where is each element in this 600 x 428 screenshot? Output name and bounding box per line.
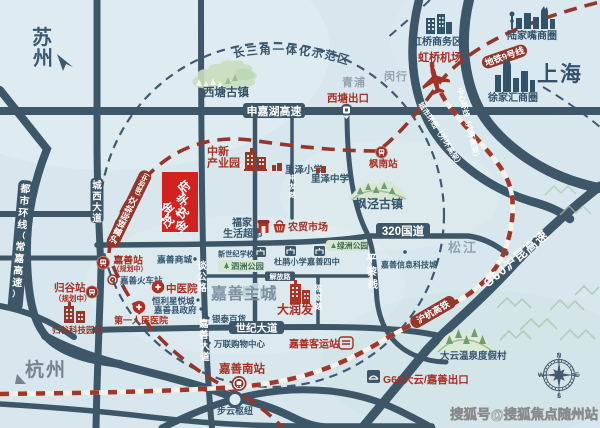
svg-text:归谷站: 归谷站: [54, 281, 86, 294]
svg-text:大润发: 大润发: [277, 302, 314, 317]
svg-text:嘉善商城: 嘉善商城: [156, 254, 192, 265]
svg-text:虹桥商务区: 虹桥商务区: [412, 35, 462, 48]
svg-text:家: 家: [315, 292, 323, 302]
svg-text:环: 环: [18, 207, 29, 220]
svg-text:嘉善县政府: 嘉善县政府: [153, 305, 197, 315]
svg-text:（规划中）: （规划中）: [54, 293, 92, 303]
svg-text:大: 大: [92, 202, 102, 214]
svg-text:友: 友: [289, 182, 296, 191]
svg-text:大云温泉度假村: 大云温泉度假村: [440, 350, 507, 362]
svg-text:生活超市: 生活超市: [223, 227, 263, 240]
svg-text:农贸市场: 农贸市场: [287, 221, 328, 234]
svg-text:善: 善: [199, 329, 209, 341]
svg-text:万联购物中心: 万联购物中心: [213, 339, 266, 349]
svg-text:徐家汇商圈: 徐家汇商圈: [487, 91, 538, 104]
svg-text:嘉善站: 嘉善站: [113, 254, 144, 267]
svg-text:上海: 上海: [537, 62, 583, 86]
svg-text:西塘出口: 西塘出口: [327, 92, 369, 105]
svg-text:W: W: [538, 372, 545, 379]
svg-text:中新: 中新: [207, 144, 229, 158]
svg-text:解放路: 解放路: [270, 272, 292, 281]
svg-text:虹桥机场: 虹桥机场: [418, 50, 462, 64]
svg-text:枫南站: 枫南站: [369, 158, 398, 170]
svg-text:中医院: 中医院: [166, 282, 198, 295]
svg-text:S: S: [557, 393, 562, 400]
svg-text:路: 路: [289, 190, 296, 199]
svg-text:松江: 松江: [448, 240, 478, 255]
svg-text:E: E: [575, 372, 580, 379]
svg-text:步云枢纽: 步云枢纽: [217, 405, 253, 416]
svg-text:）: ）: [12, 289, 21, 300]
svg-text:常: 常: [15, 240, 26, 254]
svg-text:泗洲公园: 泗洲公园: [231, 261, 264, 271]
svg-text:西塘古镇: 西塘古镇: [203, 85, 249, 99]
svg-text:市: 市: [19, 194, 30, 208]
svg-text:平: 平: [367, 253, 377, 265]
svg-text:嘉: 嘉: [198, 318, 209, 330]
svg-text:黎: 黎: [367, 265, 377, 278]
svg-text:福家: 福家: [231, 216, 253, 229]
svg-text:枫泾古镇: 枫泾古镇: [355, 196, 403, 211]
svg-text:银泰百货: 银泰百货: [211, 314, 247, 324]
svg-text:绿洲公园: 绿洲公园: [337, 241, 368, 251]
svg-text:苏: 苏: [32, 26, 52, 49]
svg-text:谈: 谈: [197, 260, 207, 272]
svg-text:G60大云/嘉善出口: G60大云/嘉善出口: [383, 373, 469, 386]
svg-text:道: 道: [200, 351, 210, 363]
svg-text:嘉善四中: 嘉善四中: [306, 257, 340, 267]
svg-text:速: 速: [12, 275, 23, 289]
svg-text:里泽中学: 里泽中学: [311, 173, 350, 185]
svg-text:（规划中）: （规划中）: [113, 264, 148, 273]
svg-text:申嘉湖高速: 申嘉湖高速: [247, 104, 302, 118]
svg-text:陈: 陈: [315, 283, 323, 293]
svg-text:线: 线: [368, 278, 378, 291]
svg-text:道: 道: [92, 213, 102, 225]
svg-text:第一人民医院: 第一人民医院: [114, 315, 168, 326]
svg-text:闵行: 闵行: [384, 69, 408, 83]
svg-text:嘉善南站: 嘉善南站: [218, 362, 265, 376]
svg-text:嘉: 嘉: [13, 251, 25, 265]
svg-text:搜狐号@搜狐焦点随州站: 搜狐号@搜狐焦点随州站: [450, 406, 599, 422]
svg-text:公: 公: [197, 272, 207, 283]
svg-text:杜鹃小学: 杜鹃小学: [274, 257, 307, 267]
svg-text:州: 州: [33, 47, 53, 70]
svg-text:产业园: 产业园: [207, 156, 240, 170]
svg-text:线: 线: [17, 218, 28, 232]
svg-text:青浦: 青浦: [342, 75, 366, 89]
svg-text:嘉善客运站: 嘉善客运站: [288, 338, 339, 351]
svg-text:归谷科技园区: 归谷科技园区: [52, 325, 104, 335]
svg-text:西: 西: [92, 192, 102, 203]
svg-text:都: 都: [19, 182, 31, 196]
svg-text:N: N: [557, 353, 562, 360]
svg-text:城: 城: [92, 180, 102, 192]
svg-text:嘉善信息科技城: 嘉善信息科技城: [380, 260, 437, 270]
svg-text:路: 路: [197, 282, 207, 294]
svg-text:高: 高: [13, 264, 24, 278]
svg-text:陆家嘴商圈: 陆家嘴商圈: [507, 29, 557, 42]
svg-text:新世纪学校: 新世纪学校: [218, 250, 255, 259]
svg-text:路: 路: [315, 301, 323, 311]
svg-text:杭州: 杭州: [25, 358, 67, 381]
svg-text:320国道: 320国道: [382, 224, 425, 238]
svg-text:（: （: [17, 230, 26, 241]
svg-text:嘉善主城: 嘉善主城: [210, 284, 277, 303]
